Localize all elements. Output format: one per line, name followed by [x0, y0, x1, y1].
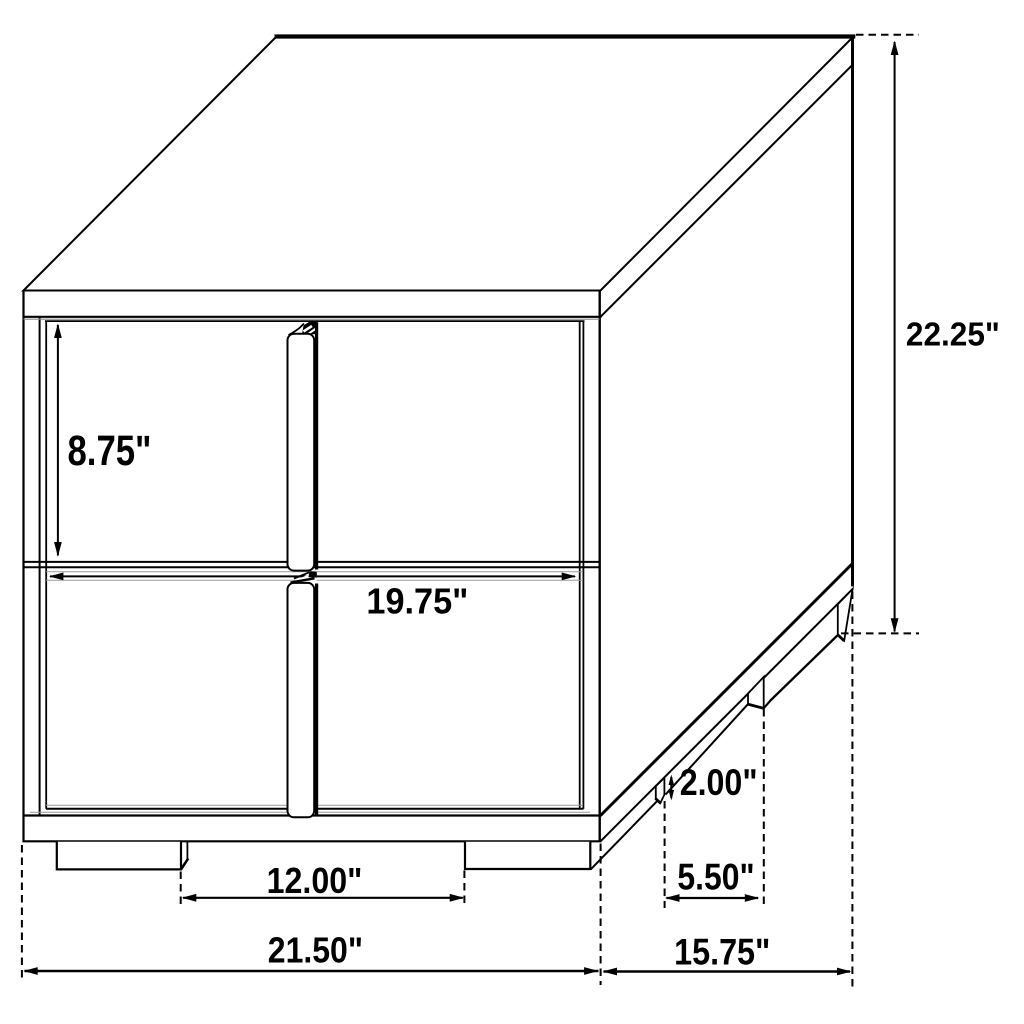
svg-text:15.75": 15.75" [674, 931, 770, 973]
svg-text:12.00": 12.00" [267, 860, 363, 901]
svg-text:8.75": 8.75" [68, 427, 152, 475]
svg-text:22.25": 22.25" [906, 315, 1000, 352]
svg-text:5.50": 5.50" [677, 857, 754, 898]
svg-text:21.50": 21.50" [268, 930, 363, 971]
svg-text:19.75": 19.75" [366, 581, 468, 622]
svg-text:2.00": 2.00" [680, 762, 758, 803]
